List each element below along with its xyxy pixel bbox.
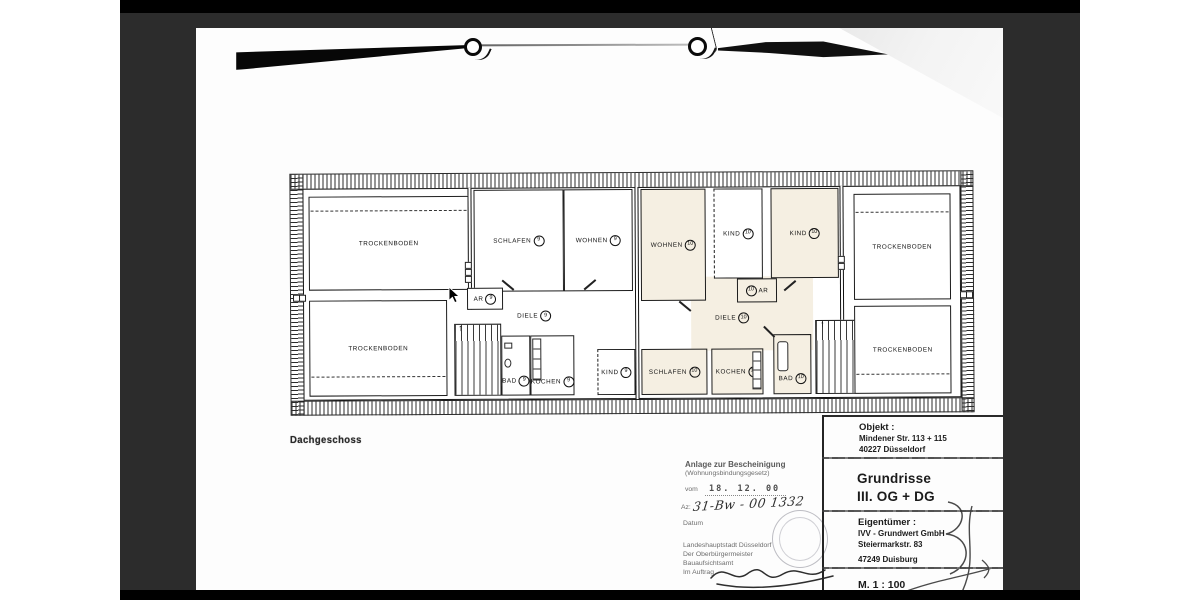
stamp-date-label: vom — [685, 486, 698, 493]
scan-smear-right — [718, 40, 888, 58]
room-label: WOHNEN9 — [576, 235, 621, 246]
screenshot-root: { "colors": { "viewer_background": "#2c2… — [0, 0, 1200, 600]
scale-label: M. 1 : 100 — [858, 579, 905, 590]
room-name-text: TROCKENBODEN — [348, 345, 408, 352]
fire-wall-right — [839, 186, 844, 320]
unit-number-circle: 10 — [746, 285, 757, 296]
room-name-text: AR — [474, 295, 484, 302]
room-name-text: TROCKENBODEN — [359, 240, 419, 247]
staircase-left: ↑ — [454, 324, 501, 396]
room-name-text: KIND — [601, 369, 618, 376]
owner-line3: 47249 Duisburg — [858, 555, 918, 564]
unit-number-circle: 10 — [809, 228, 820, 239]
approval-stamp-block: Anlage zur Bescheinigung (Wohnungsbindun… — [679, 458, 839, 590]
title-block-left-rule — [822, 415, 824, 590]
stair-up-arrow: ↑ — [820, 319, 825, 329]
room-wohnen-9: WOHNEN9 — [563, 189, 633, 291]
chimney-mark — [838, 256, 845, 263]
room-label: 10AR — [746, 285, 769, 296]
unit-number-circle: 9 — [533, 235, 544, 246]
chimney-mark — [838, 263, 845, 270]
object-address-line2: 40227 Düsseldorf — [859, 445, 925, 454]
chimney-mark — [465, 269, 472, 276]
title-block-top-rule — [822, 415, 1003, 417]
room-kind-10-b: KIND10 — [770, 188, 838, 278]
room-diele-10-label: DIELE10 — [715, 312, 749, 323]
room-bad-10: BAD10 — [773, 334, 811, 394]
drawing-heading: Grundrisse — [857, 471, 931, 486]
stamp-line2: (Wohnungsbindungsgesetz) — [685, 470, 770, 477]
room-trockenboden-top-right: TROCKENBODEN — [853, 193, 951, 300]
unit-number-circle: 10 — [689, 366, 700, 377]
unit-number-circle: 10 — [795, 373, 806, 384]
authority-line2: Der Oberbürgermeister — [683, 551, 753, 558]
object-heading: Objekt : — [859, 422, 894, 433]
title-block-separator — [822, 510, 1003, 512]
room-label: TROCKENBODEN — [873, 346, 933, 353]
room-label: SCHLAFEN10 — [649, 366, 700, 377]
drawing-floor-line: III. OG + DG — [857, 489, 935, 504]
paper-fold-corner — [836, 28, 1003, 120]
scanned-page: TROCKENBODEN SCHLAFEN9 WOHNEN9 WOHNEN10 … — [196, 28, 1003, 590]
room-kochen-10: KOCHEN10 — [711, 348, 763, 394]
stair-up-arrow: ↑ — [458, 323, 463, 333]
room-label: TROCKENBODEN — [359, 240, 419, 247]
room-name-text: KIND — [723, 230, 740, 237]
title-block-separator — [822, 457, 1003, 459]
toilet-fixture — [504, 359, 511, 368]
room-name-text: BAD — [779, 375, 794, 382]
unit-number-circle: 9 — [485, 293, 496, 304]
room-label: KIND10 — [790, 228, 820, 239]
room-wohnen-10: WOHNEN10 — [640, 189, 706, 301]
scan-smear-line — [468, 44, 696, 47]
room-kind-9: KIND9 — [597, 349, 635, 395]
unit-number-circle: 10 — [738, 312, 749, 323]
room-name-text: KIND — [790, 230, 807, 237]
room-label: BAD9 — [502, 375, 530, 386]
room-diele-9-label: DIELE9 — [517, 310, 551, 321]
room-kochen-9: KOCHEN9 — [530, 335, 574, 395]
object-address-line1: Mindener Str. 113 + 115 — [859, 434, 947, 443]
staircase-right: ↑ — [815, 320, 859, 394]
room-label: AR9 — [474, 293, 497, 304]
room-label: WOHNEN10 — [651, 239, 696, 250]
room-name-text: WOHNEN — [651, 241, 683, 248]
room-trockenboden-bottom-right: TROCKENBODEN — [854, 305, 951, 394]
plan-title: Dachgeschoss — [290, 435, 362, 447]
unit-number-circle: 10 — [742, 228, 753, 239]
owner-heading: Eigentümer : — [858, 517, 916, 528]
room-name-text: SCHLAFEN — [493, 237, 531, 244]
floor-plan: TROCKENBODEN SCHLAFEN9 WOHNEN9 WOHNEN10 … — [289, 170, 974, 416]
room-schlafen-10: SCHLAFEN10 — [641, 349, 707, 395]
room-label: KIND10 — [723, 228, 753, 239]
chimney-mark — [465, 262, 472, 269]
unit-number-circle: 9 — [621, 367, 632, 378]
unit-number-circle: 9 — [540, 310, 551, 321]
scan-smear-left — [236, 44, 470, 70]
room-name-text: WOHNEN — [576, 237, 608, 244]
room-name-text: KOCHEN — [716, 368, 746, 375]
room-label: TROCKENBODEN — [872, 243, 932, 250]
file-number-label: Az: — [681, 504, 691, 511]
window-mark — [299, 295, 306, 302]
room-label: KIND9 — [601, 367, 631, 378]
unit-number-circle: 9 — [563, 376, 574, 387]
owner-line2: Steiermarkstr. 83 — [858, 540, 923, 549]
room-bad-9: BAD9 — [501, 336, 530, 396]
room-name-text: BAD — [502, 377, 517, 384]
room-label: SCHLAFEN9 — [493, 235, 544, 246]
round-seal-stamp-inner — [779, 517, 821, 561]
title-block-separator — [822, 567, 1003, 569]
bathtub-fixture — [777, 341, 788, 371]
sink-fixture — [504, 343, 512, 349]
file-number-handwritten: 31-Bw - 00 1332 — [692, 493, 805, 514]
unit-number-circle: 9 — [610, 235, 621, 246]
chimney-mark — [465, 276, 472, 283]
kitchen-counter-fixture — [752, 351, 761, 389]
room-schlafen-9: SCHLAFEN9 — [473, 189, 564, 291]
room-trockenboden-bottom-left: TROCKENBODEN — [309, 300, 448, 397]
room-name-text: TROCKENBODEN — [873, 346, 933, 353]
window-mark — [966, 291, 973, 298]
room-label: TROCKENBODEN — [348, 345, 408, 352]
room-name-text: AR — [759, 287, 769, 294]
kitchen-counter-fixture — [532, 338, 541, 380]
room-name-text: SCHLAFEN — [649, 368, 687, 375]
room-name-text: DIELE — [517, 312, 538, 319]
letterbox-bar-bottom — [120, 590, 1080, 600]
authority-line1: Landeshauptstadt Düsseldorf — [683, 542, 771, 549]
letterbox-bar-top — [120, 0, 1080, 13]
room-ar-10: 10AR — [737, 278, 777, 302]
authority-line4: Im Auftrag — [683, 569, 714, 576]
stamp-datum-label: Datum — [683, 520, 703, 527]
room-ar-9: AR9 — [467, 288, 503, 310]
room-name-text: TROCKENBODEN — [872, 243, 932, 250]
owner-line1: IVV - Grundwert GmbH — [858, 529, 945, 538]
unit-number-circle: 10 — [685, 239, 696, 250]
stamp-line1: Anlage zur Bescheinigung — [685, 460, 785, 469]
room-label: BAD10 — [779, 373, 807, 384]
authority-line3: Bauaufsichtsamt — [683, 560, 733, 567]
unit-number-circle: 9 — [519, 375, 530, 386]
room-kind-10-a: KIND10 — [713, 188, 762, 278]
room-name-text: DIELE — [715, 314, 736, 321]
